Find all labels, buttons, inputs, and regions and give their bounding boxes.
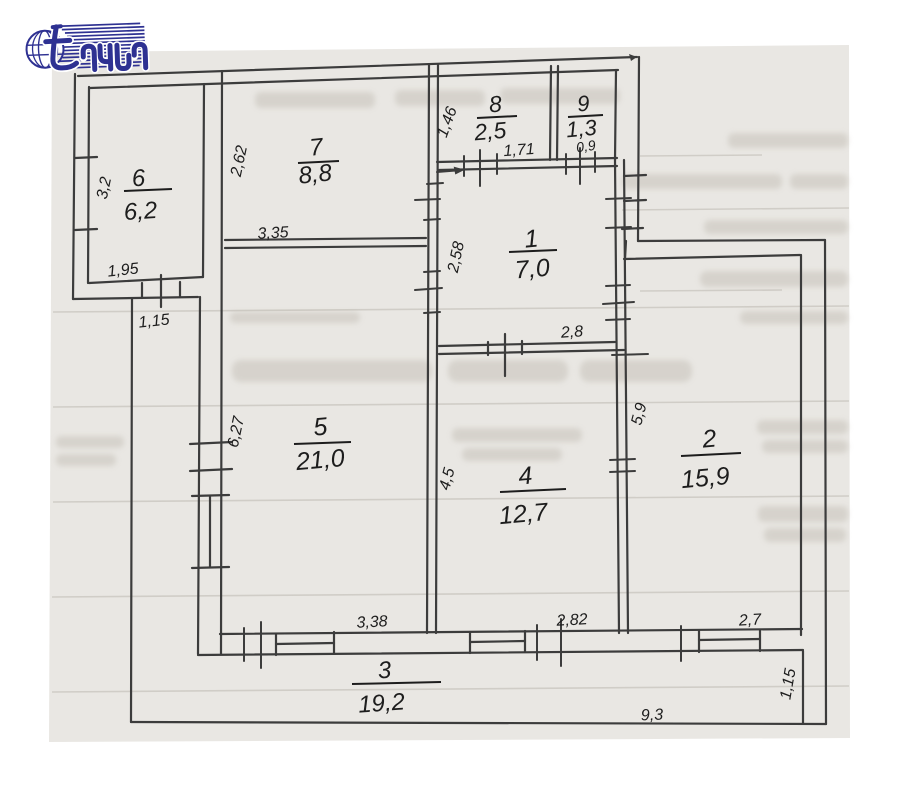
svg-text:9,3: 9,3 [641, 707, 664, 725]
svg-text:5: 5 [312, 412, 328, 441]
svg-text:3: 3 [377, 657, 393, 685]
svg-text:1,71: 1,71 [503, 141, 535, 160]
svg-text:2,8: 2,8 [559, 323, 583, 342]
svg-text:21,0: 21,0 [294, 444, 346, 476]
svg-text:2,5: 2,5 [472, 117, 507, 146]
svg-text:6: 6 [131, 165, 147, 193]
svg-text:4: 4 [517, 461, 533, 490]
svg-text:15,9: 15,9 [680, 462, 731, 494]
svg-text:3,38: 3,38 [356, 613, 388, 632]
svg-text:19,2: 19,2 [357, 688, 405, 718]
svg-text:3,35: 3,35 [257, 224, 289, 243]
svg-text:0,9: 0,9 [575, 137, 597, 156]
svg-text:12,7: 12,7 [498, 498, 550, 530]
svg-text:2,82: 2,82 [555, 611, 588, 630]
svg-text:8: 8 [488, 91, 503, 118]
svg-text:9: 9 [576, 91, 590, 117]
svg-text:7,0: 7,0 [514, 254, 551, 285]
svg-text:1,95: 1,95 [107, 260, 140, 280]
svg-text:1,15: 1,15 [138, 311, 171, 331]
svg-text:8,8: 8,8 [297, 159, 334, 189]
svg-text:2: 2 [700, 424, 717, 453]
svg-text:6,2: 6,2 [123, 197, 158, 226]
svg-text:1: 1 [523, 224, 539, 253]
svg-text:2,7: 2,7 [737, 611, 762, 629]
